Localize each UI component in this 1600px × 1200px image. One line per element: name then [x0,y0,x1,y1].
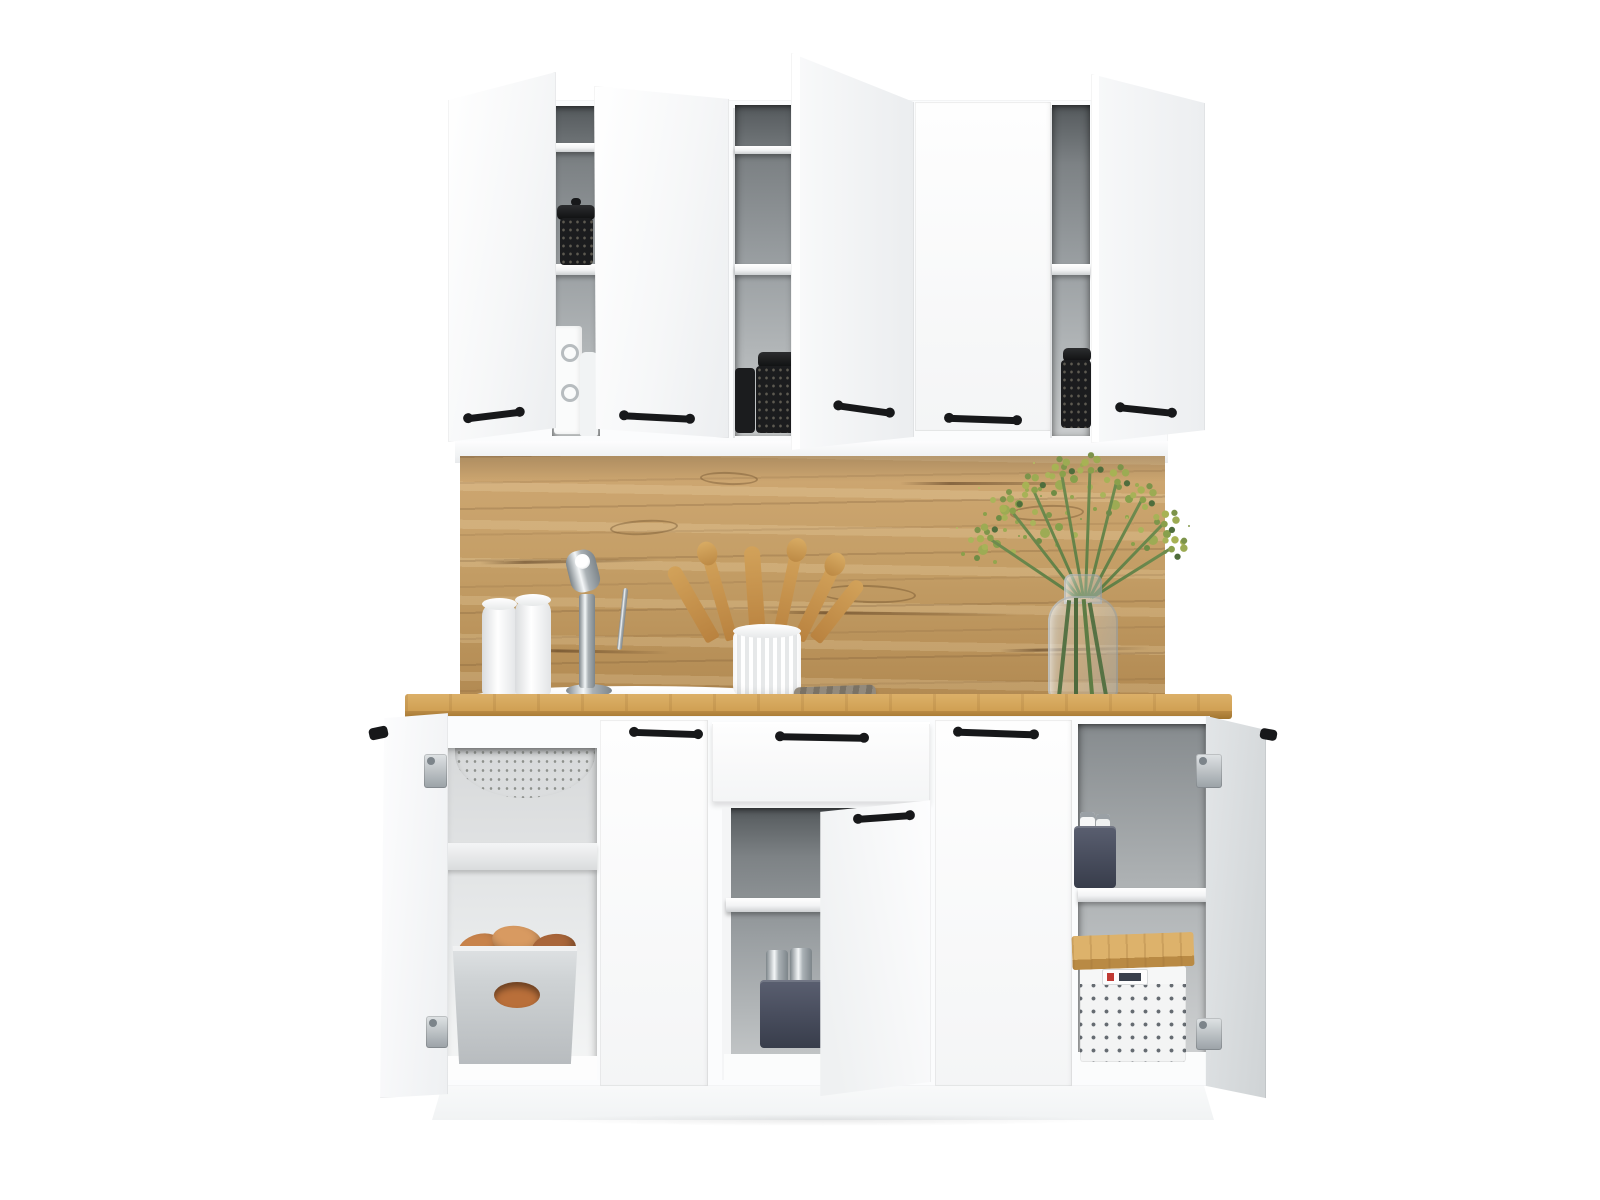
door-handle [632,729,700,738]
bin-handle-hole [494,982,540,1008]
slate-storage-basket [760,980,828,1048]
compartment-frame [722,808,731,1080]
door-hinge [1196,754,1222,788]
base-door-closed-left [600,720,708,1086]
glass-jar [790,948,812,984]
base-door-closed-right [935,720,1072,1086]
door-hinge [426,1016,448,1048]
floor-shadow [450,1112,1195,1128]
kitchen-product-photo [0,0,1600,1200]
compartment-rail [445,843,597,870]
shelf [1078,888,1207,902]
door-hinge [1196,1018,1222,1050]
drawer-handle [778,733,866,742]
door-hinge [424,754,447,788]
basket-label [1102,969,1148,985]
glass-jar [766,950,788,984]
door-handle [856,812,912,823]
drawer-front [712,722,930,802]
label-mark-red [1107,973,1114,981]
base-door-half-open [818,798,931,1100]
shelf [726,898,836,912]
base-cabinets [0,0,1600,1200]
label-mark-dark [1119,973,1141,981]
wooden-lid [1071,932,1194,970]
door-handle [956,729,1036,739]
slate-basket [1074,826,1116,888]
